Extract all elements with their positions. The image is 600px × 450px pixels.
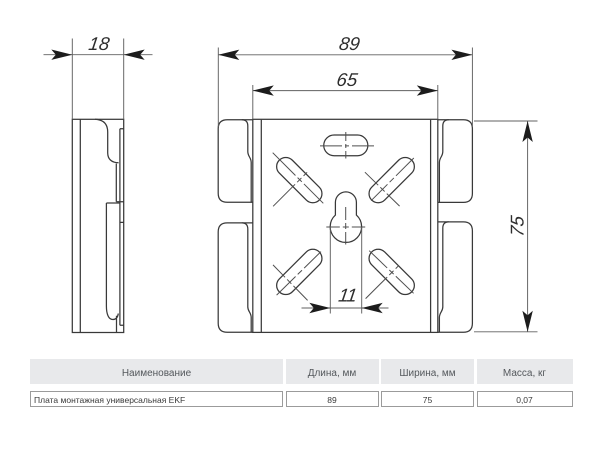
svg-text:75: 75 — [507, 214, 528, 238]
svg-text:89: 89 — [338, 33, 362, 54]
svg-text:11: 11 — [337, 285, 358, 306]
svg-text:18: 18 — [87, 33, 111, 54]
svg-text:65: 65 — [335, 69, 359, 90]
